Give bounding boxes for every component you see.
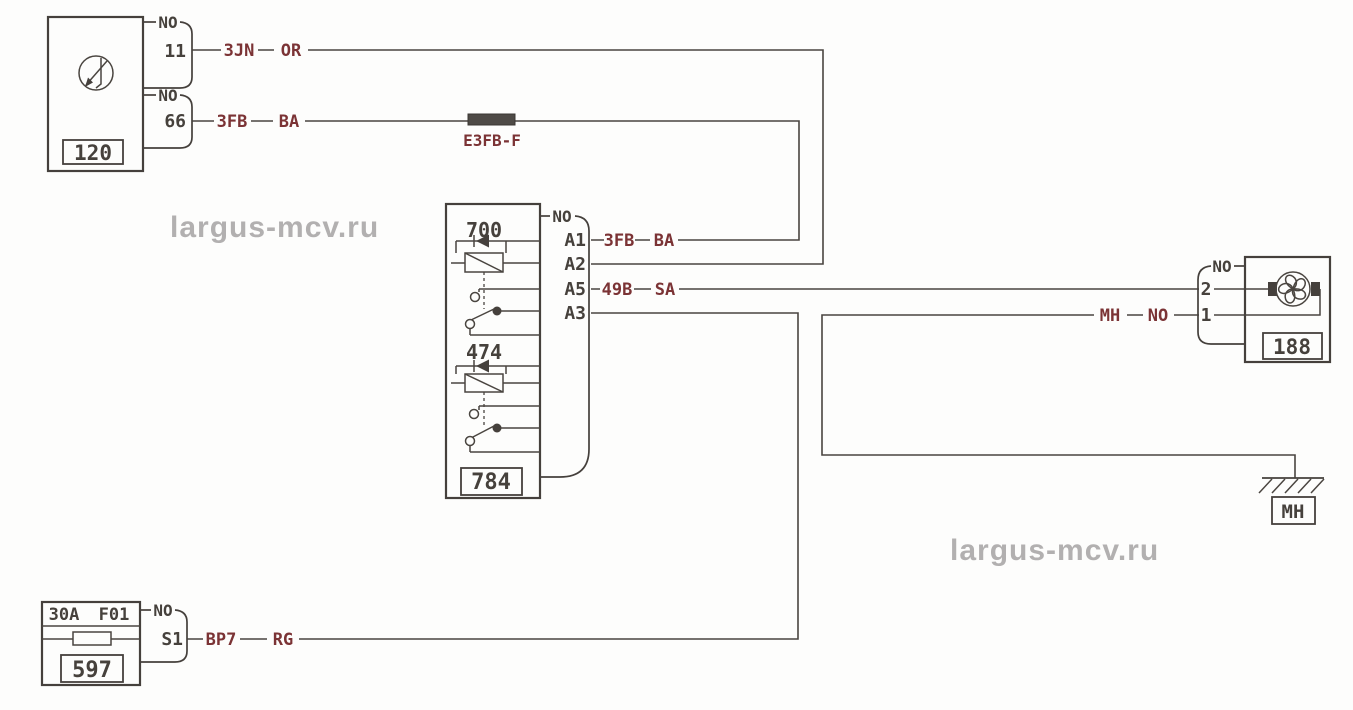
- fuse-pin-s1: S1: [161, 629, 183, 650]
- splice-label: E3FB-F: [463, 131, 521, 150]
- fan-pin-1: 1: [1201, 305, 1212, 326]
- wire-code-3fb-top: 3FB: [217, 112, 248, 132]
- fan-motor-id: 188: [1273, 335, 1311, 359]
- ground-id: MH: [1282, 501, 1305, 523]
- relay-700-coil: [451, 235, 540, 310]
- pin66-label: 66: [164, 111, 186, 132]
- splice-bar: [468, 114, 515, 125]
- splice-e3fb-f: E3FB-F: [463, 114, 521, 150]
- control-unit-symbol-icon: [79, 56, 113, 90]
- relay-pin-a5: A5: [564, 279, 586, 300]
- fan-connector: NO 2 1: [1198, 257, 1245, 344]
- wire-mh-no: [822, 315, 1295, 478]
- fuse-597: 30A F01 597 NO S1: [42, 601, 187, 685]
- relay-474-contacts: [466, 406, 541, 452]
- fuse-rating: 30A: [49, 605, 80, 625]
- wire-code-3fb-a1: 3FB: [604, 231, 635, 251]
- relay-module-id: 784: [471, 470, 511, 495]
- control-unit-id: 120: [74, 141, 112, 165]
- relay-pin-a2: A2: [564, 254, 586, 275]
- fuse-icon: [73, 632, 111, 645]
- relay-700-contacts: [466, 289, 541, 335]
- control-unit-pin66-connector: NO 66: [143, 86, 192, 148]
- fuse-connector-label: NO: [153, 601, 172, 620]
- relay-module-connector: NO A1 A2 A5 A3: [540, 207, 589, 477]
- watermark-bottom: largus-mcv.ru: [950, 534, 1159, 567]
- diagram-canvas: largus-mcv.ru largus-mcv.ru E3FB-F 3JN O…: [0, 0, 1353, 710]
- fuse-id: 597: [72, 658, 112, 683]
- wire-code-3jn: 3JN: [224, 41, 255, 61]
- fan-motor-188: 188 NO 2 1: [1198, 257, 1330, 362]
- relay-bottom-id: 474: [466, 340, 502, 364]
- ground-icon: [1259, 478, 1324, 493]
- wire-code-mh: MH: [1100, 306, 1120, 326]
- wire-code-49b: 49B: [602, 280, 633, 300]
- relay-pin-a3: A3: [564, 303, 586, 324]
- wire-color-or: OR: [281, 41, 302, 61]
- fan-pin-2: 2: [1201, 279, 1212, 300]
- relay-pin-a1: A1: [564, 230, 586, 251]
- wire-color-ba-top: BA: [279, 112, 299, 132]
- wire-color-ba-a1: BA: [654, 231, 674, 251]
- ground-mh: MH: [1259, 478, 1324, 524]
- relay-module-784: 700 474: [446, 204, 589, 498]
- wiring-diagram: largus-mcv.ru largus-mcv.ru E3FB-F 3JN O…: [0, 0, 1353, 710]
- control-unit-pin11-connector: NO 11: [143, 13, 192, 88]
- fuse-name: F01: [99, 605, 130, 625]
- wire-color-sa: SA: [655, 280, 675, 300]
- watermark-top: largus-mcv.ru: [170, 211, 379, 244]
- fuse-connector: NO S1: [140, 601, 187, 662]
- wire-code-bp7: BP7: [206, 630, 237, 650]
- control-unit-120: 120 NO 11 NO 66: [48, 13, 192, 171]
- pin11-connector-label: NO: [158, 13, 177, 32]
- pin11-label: 11: [164, 41, 186, 62]
- fan-brush-right: [1311, 282, 1320, 296]
- wire-color-no: NO: [1148, 306, 1168, 326]
- relay-474-coil: [451, 360, 540, 427]
- pin66-connector-label: NO: [158, 86, 177, 105]
- relay-connector-label: NO: [552, 207, 571, 226]
- fan-icon: [1276, 272, 1310, 306]
- fan-connector-label: NO: [1212, 257, 1231, 276]
- wire-color-rg: RG: [273, 630, 293, 650]
